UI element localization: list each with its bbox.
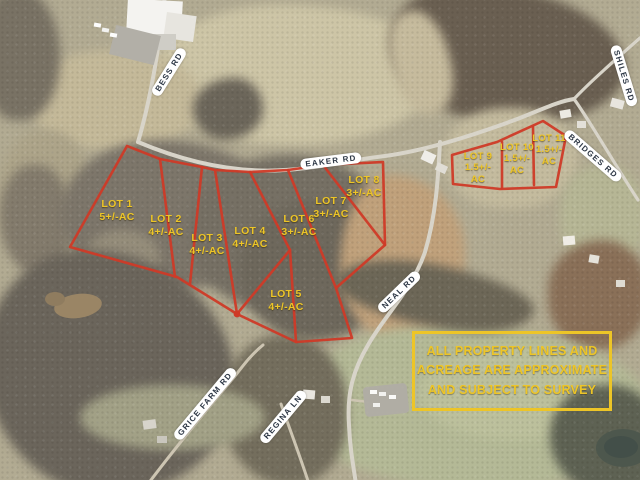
lot-11-acreage: 1.5+/- AC: [536, 144, 562, 166]
house-right-2: [577, 121, 586, 128]
lot-line-4-6-5: [250, 172, 296, 342]
lot-label-4: LOT 44+/-AC: [232, 225, 267, 251]
house-eaker-junction: [420, 150, 436, 165]
shed-bottom-left-1: [143, 419, 157, 430]
mud-pond-small: [45, 292, 65, 306]
disclaimer-box: ALL PROPERTY LINES AND ACREAGE ARE APPRO…: [412, 331, 612, 411]
lot-11-name: LOT 11: [532, 133, 565, 144]
lot-line-2-3: [190, 167, 202, 284]
lot-label-8: LOT 83+/-AC: [346, 174, 381, 200]
lot-5-name: LOT 5: [270, 288, 301, 300]
lot-8-name: LOT 8: [348, 174, 379, 186]
house-right-1: [559, 109, 571, 119]
lot-8-acreage: 3+/-AC: [346, 187, 381, 199]
lot-label-2: LOT 24+/-AC: [148, 213, 183, 239]
lot-2-acreage: 4+/-AC: [148, 226, 183, 238]
road-grice-farm-rd: [148, 345, 263, 480]
car: [370, 390, 377, 394]
house-bottom-2: [321, 396, 330, 403]
car: [389, 395, 396, 399]
lot-2-name: LOT 2: [150, 213, 181, 225]
house-right-5: [588, 254, 599, 264]
lot-10-acreage: 1.5+/- AC: [504, 153, 530, 175]
lot-5-acreage: 4+/-AC: [268, 301, 303, 313]
lot-1-acreage: 5+/-AC: [99, 211, 134, 223]
lot-3-acreage: 4+/-AC: [189, 245, 224, 257]
lot-9-acreage: 1.5+/- AC: [465, 162, 491, 184]
pond-bottom-right-deep: [604, 436, 638, 458]
lot-label-9: LOT 91.5+/- AC: [457, 151, 499, 185]
disclaimer-line-2: ACREAGE ARE APPROXIMATE: [417, 361, 607, 380]
shed-bottom-left-2: [157, 436, 167, 443]
house-right-3: [610, 98, 625, 110]
lot-label-1: LOT 15+/-AC: [99, 198, 134, 224]
lot-7-acreage: 3+/-AC: [313, 208, 348, 220]
lot-1-name: LOT 1: [101, 198, 132, 210]
lot-7-name: LOT 7: [315, 195, 346, 207]
parcel-corner-node: [234, 311, 241, 318]
lot-6-acreage: 3+/-AC: [281, 226, 316, 238]
lot-label-6: LOT 63+/-AC: [281, 213, 316, 239]
aerial-plat-map: LOT 15+/-AC LOT 24+/-AC LOT 34+/-AC LOT …: [0, 0, 640, 480]
disclaimer-line-3: AND SUBJECT TO SURVEY: [428, 381, 596, 400]
lot-label-7: LOT 73+/-AC: [313, 195, 348, 221]
car: [373, 403, 380, 407]
car: [379, 392, 386, 396]
lot-label-3: LOT 34+/-AC: [189, 232, 224, 258]
lot-3-name: LOT 3: [191, 232, 222, 244]
lot-4-name: LOT 4: [234, 225, 265, 237]
parking-lot-bottom: [363, 383, 410, 417]
house-right-6: [616, 280, 625, 287]
lot-label-5: LOT 54+/-AC: [268, 288, 303, 314]
lot-6-name: LOT 6: [283, 213, 314, 225]
house-right-4: [563, 235, 576, 245]
car: [94, 23, 102, 28]
car: [102, 28, 110, 33]
disclaimer-line-1: ALL PROPERTY LINES AND: [427, 342, 598, 361]
lot-9-name: LOT 9: [464, 151, 492, 162]
lot-4-acreage: 4+/-AC: [232, 238, 267, 250]
